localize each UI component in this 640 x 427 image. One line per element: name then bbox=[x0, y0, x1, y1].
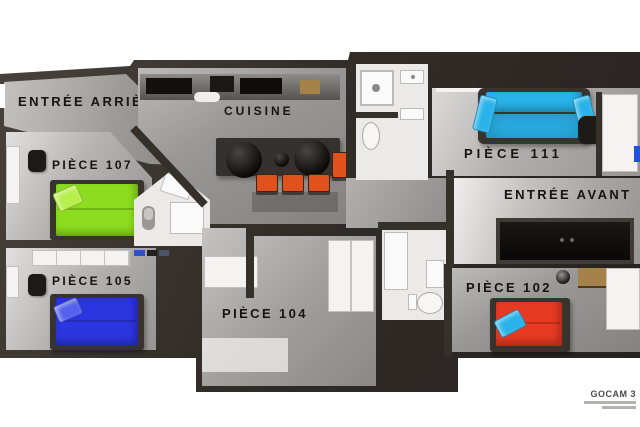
room-label-entree-avant: Entrée Avant bbox=[504, 187, 632, 202]
wardrobe-dark bbox=[496, 218, 634, 264]
bathroom-center bbox=[382, 228, 446, 320]
kitchen-appliance bbox=[146, 78, 192, 94]
watermark-subline bbox=[584, 401, 636, 404]
wall-segment bbox=[378, 222, 448, 230]
wall-segment bbox=[596, 92, 602, 176]
room-label-piece-104: Pièce 104 bbox=[222, 306, 308, 321]
desk bbox=[606, 268, 640, 330]
desk bbox=[6, 146, 20, 204]
room-piece-102: Pièce 102 bbox=[452, 268, 640, 352]
dining-chair bbox=[256, 174, 278, 192]
shower-tray bbox=[170, 202, 204, 234]
wall-segment bbox=[356, 112, 398, 118]
watermark: GOCAM 3 bbox=[570, 390, 636, 409]
desk-chair bbox=[28, 150, 46, 172]
room-label-piece-105: Pièce 105 bbox=[52, 274, 133, 288]
bed-piece-102 bbox=[490, 298, 570, 352]
kitchen-appliance bbox=[240, 78, 282, 94]
cutting-board bbox=[300, 80, 320, 94]
room-piece-104: Pièce 104 bbox=[202, 226, 376, 386]
desk-chair bbox=[28, 274, 46, 296]
floor-highlight bbox=[202, 338, 288, 372]
room-label-piece-102: Pièce 102 bbox=[466, 280, 552, 295]
bed-piece-105 bbox=[50, 294, 144, 350]
room-entree-avant: Entrée Avant bbox=[452, 178, 640, 264]
shoes bbox=[134, 250, 145, 256]
toilet-tank bbox=[408, 294, 417, 310]
wall-segment bbox=[246, 236, 254, 298]
wall-segment bbox=[444, 264, 452, 356]
sofa-back-cushion bbox=[486, 92, 582, 112]
room-piece-111: Pièce 111 bbox=[432, 88, 640, 176]
kitchen-appliance bbox=[210, 76, 234, 92]
room-label-piece-107: Pièce 107 bbox=[52, 158, 133, 172]
corridor-center bbox=[346, 178, 452, 228]
shelf bbox=[400, 108, 424, 120]
dining-chair bbox=[308, 174, 330, 192]
dining-chair bbox=[282, 174, 304, 192]
wardrobe-handle bbox=[560, 238, 564, 242]
wood-desk bbox=[578, 268, 606, 288]
bed-piece-107 bbox=[50, 180, 144, 240]
back-door-opening bbox=[0, 84, 5, 108]
sink bbox=[400, 70, 424, 84]
dining-chair bbox=[332, 152, 348, 178]
chair-shadow bbox=[252, 192, 338, 212]
sink-cabinet bbox=[384, 232, 408, 290]
shelf bbox=[426, 260, 444, 288]
closet-doors bbox=[328, 240, 374, 312]
toilet bbox=[417, 292, 443, 314]
mattress-seam bbox=[58, 208, 136, 210]
room-piece-105: Pièce 105 bbox=[6, 248, 156, 350]
watermark-brand: GOCAM 3 bbox=[570, 390, 636, 399]
floor-plan: Entrée Arrière Cuisine Pièce 107 bbox=[0, 0, 640, 427]
shower bbox=[360, 70, 394, 106]
mattress-seam bbox=[58, 320, 136, 322]
bar-stool bbox=[294, 140, 330, 176]
desk-accessory bbox=[634, 146, 640, 162]
sofa-seat-cushion bbox=[486, 114, 582, 138]
toilet-lid bbox=[144, 208, 153, 220]
toilet bbox=[142, 206, 155, 230]
ceiling-light bbox=[556, 270, 570, 284]
toilet bbox=[362, 122, 380, 150]
desk bbox=[6, 266, 19, 298]
room-label-piece-111: Pièce 111 bbox=[464, 146, 563, 161]
desk bbox=[602, 94, 638, 172]
faucet bbox=[411, 75, 415, 79]
shoes bbox=[159, 250, 169, 256]
wardrobe-handle bbox=[570, 238, 574, 242]
bathroom-main bbox=[356, 64, 428, 180]
wardrobe bbox=[32, 250, 130, 266]
watermark-subline bbox=[602, 406, 636, 409]
room-label-cuisine: Cuisine bbox=[224, 104, 294, 118]
sofa-piece-111 bbox=[478, 88, 590, 144]
wall-segment bbox=[446, 170, 454, 268]
bar-stool bbox=[226, 142, 262, 178]
kitchen-sink bbox=[194, 92, 220, 102]
shower-drain bbox=[372, 84, 380, 92]
bar-stool-small bbox=[274, 152, 289, 167]
shoes bbox=[147, 250, 157, 256]
